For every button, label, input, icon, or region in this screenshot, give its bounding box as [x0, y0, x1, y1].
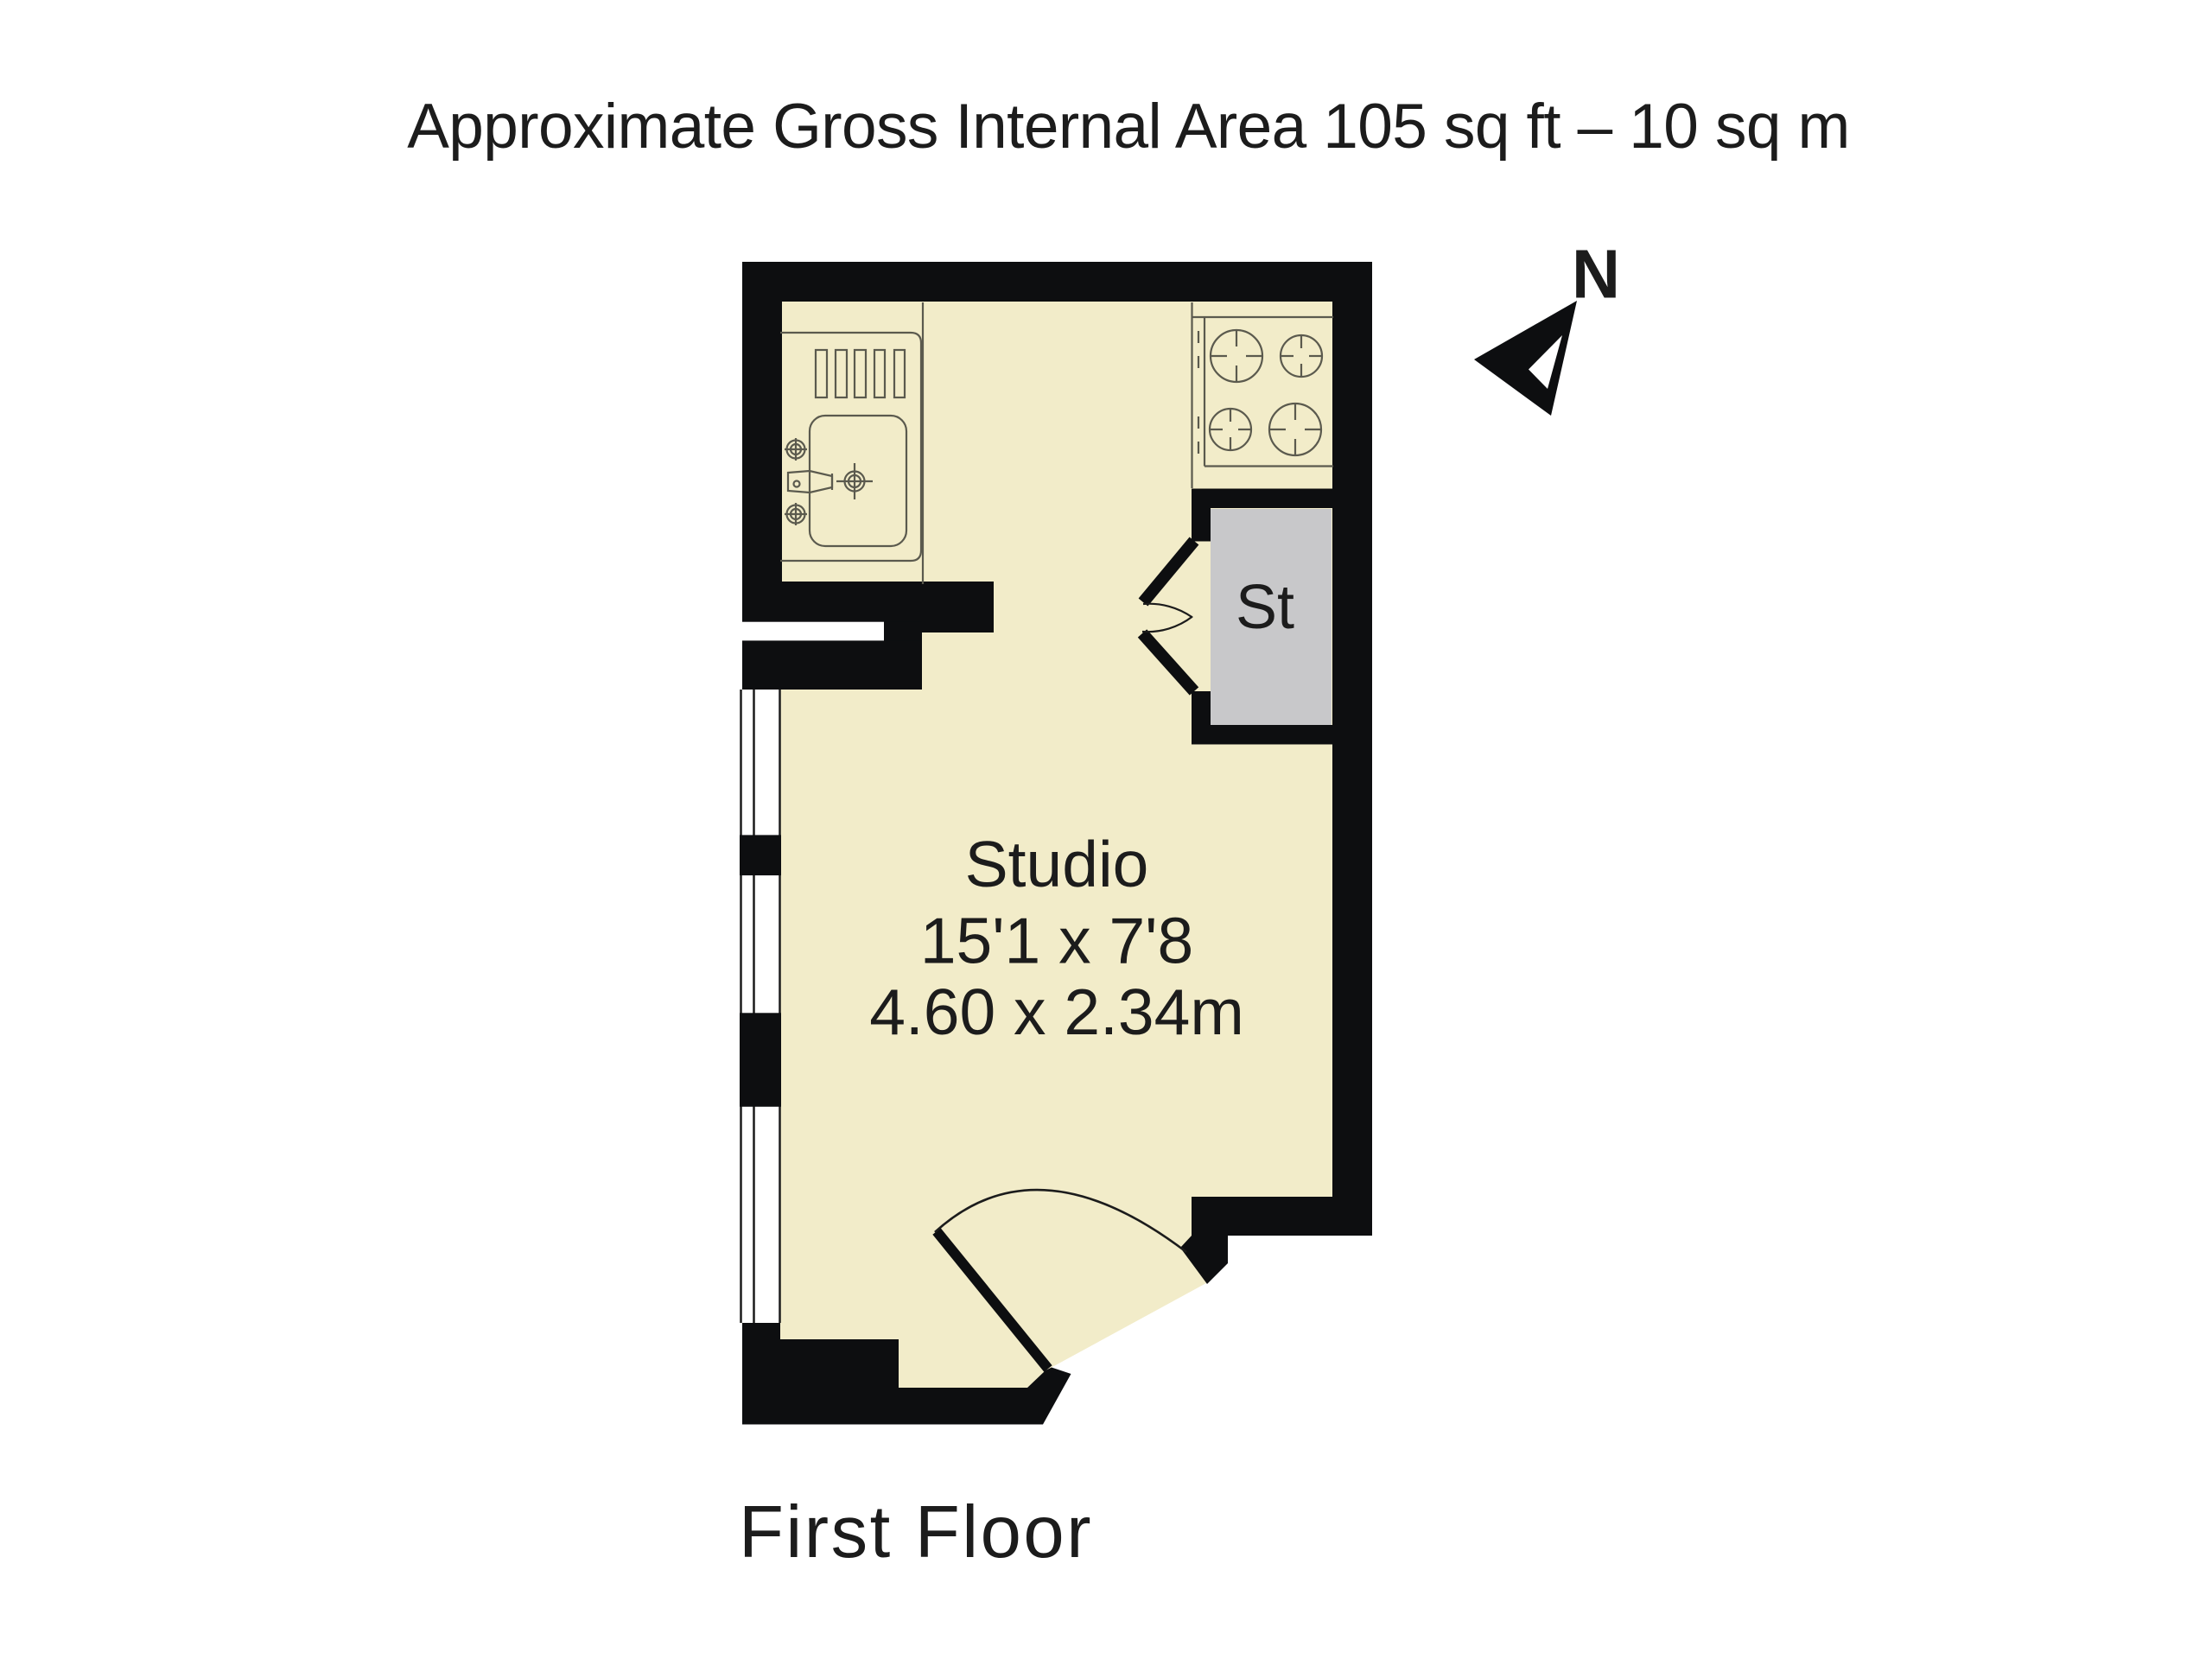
- svg-text:4.60 x 2.34m: 4.60 x 2.34m: [869, 976, 1244, 1048]
- svg-text:First Floor: First Floor: [739, 1491, 1093, 1573]
- svg-text:Studio: Studio: [965, 828, 1149, 900]
- svg-text:N: N: [1572, 236, 1620, 313]
- svg-text:St: St: [1236, 573, 1294, 642]
- svg-text:15'1 x 7'8: 15'1 x 7'8: [920, 905, 1193, 977]
- svg-text:Approximate Gross Internal Are: Approximate Gross Internal Area 105 sq f…: [407, 92, 1850, 162]
